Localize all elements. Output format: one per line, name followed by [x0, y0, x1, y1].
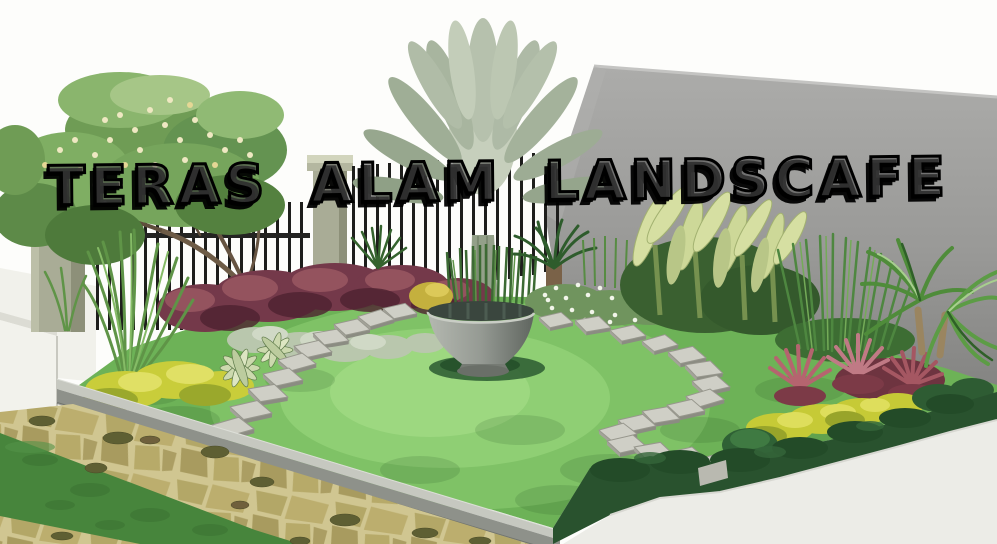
watermark-text: TERAS ALAM LANDSCAFE [47, 145, 949, 217]
garden-render: TERAS ALAM LANDSCAFE [0, 0, 997, 544]
